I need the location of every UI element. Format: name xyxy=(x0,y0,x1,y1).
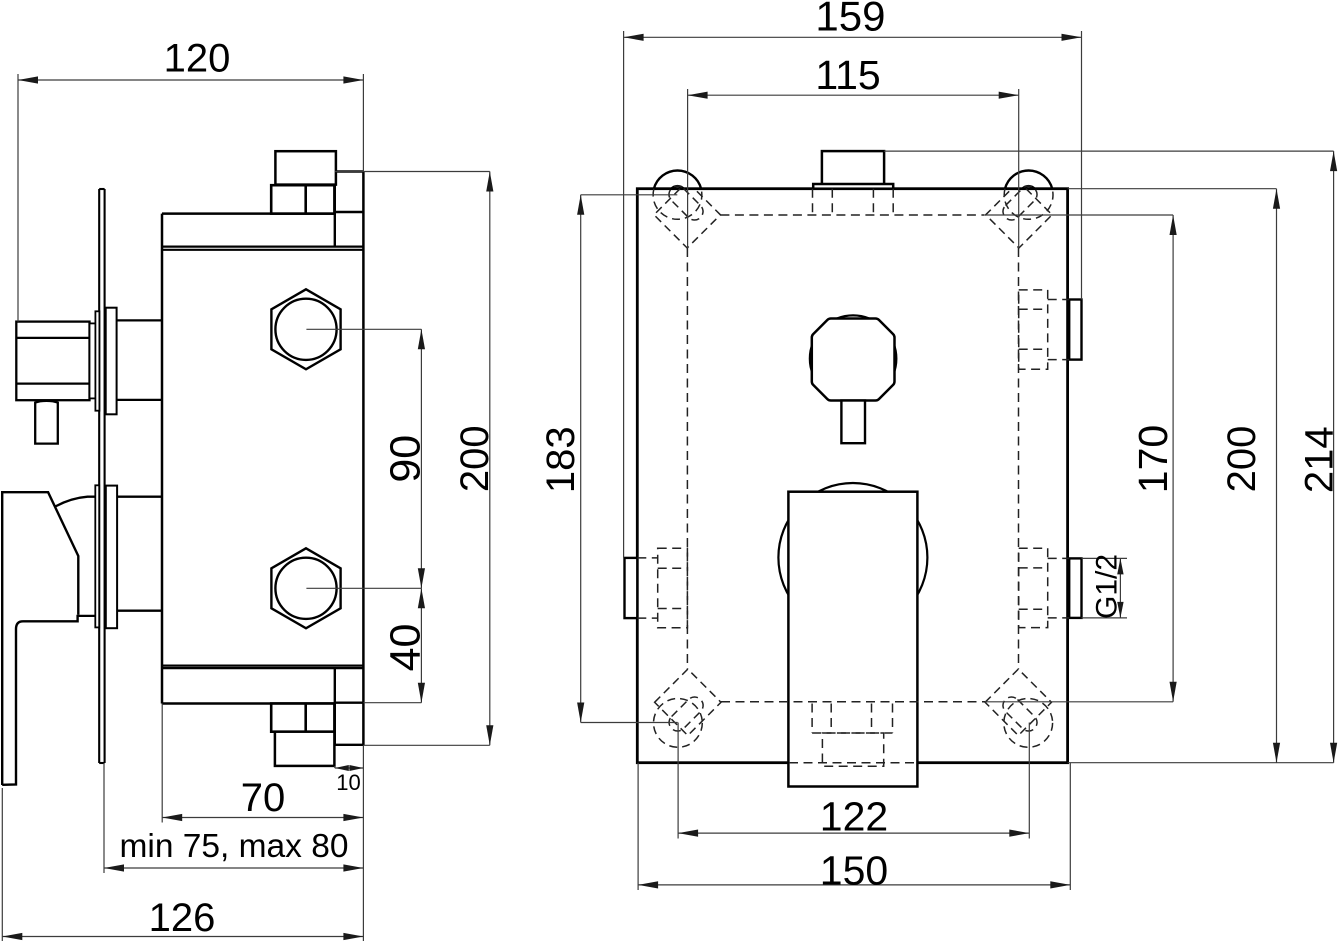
svg-text:120: 120 xyxy=(164,37,231,81)
svg-text:200: 200 xyxy=(1220,426,1264,493)
svg-text:70: 70 xyxy=(241,776,286,820)
svg-text:150: 150 xyxy=(820,848,888,894)
svg-text:10: 10 xyxy=(336,770,360,795)
svg-text:115: 115 xyxy=(815,52,880,98)
svg-text:159: 159 xyxy=(815,0,885,40)
svg-text:200: 200 xyxy=(453,425,497,492)
svg-text:90: 90 xyxy=(382,435,430,483)
svg-text:214: 214 xyxy=(1298,426,1339,493)
svg-text:G1/2: G1/2 xyxy=(1091,554,1124,619)
svg-text:183: 183 xyxy=(539,426,583,493)
svg-text:40: 40 xyxy=(382,624,430,672)
svg-text:170: 170 xyxy=(1130,425,1176,493)
svg-text:min 75, max 80: min 75, max 80 xyxy=(119,828,348,865)
svg-text:122: 122 xyxy=(820,794,888,840)
svg-text:126: 126 xyxy=(149,896,216,940)
